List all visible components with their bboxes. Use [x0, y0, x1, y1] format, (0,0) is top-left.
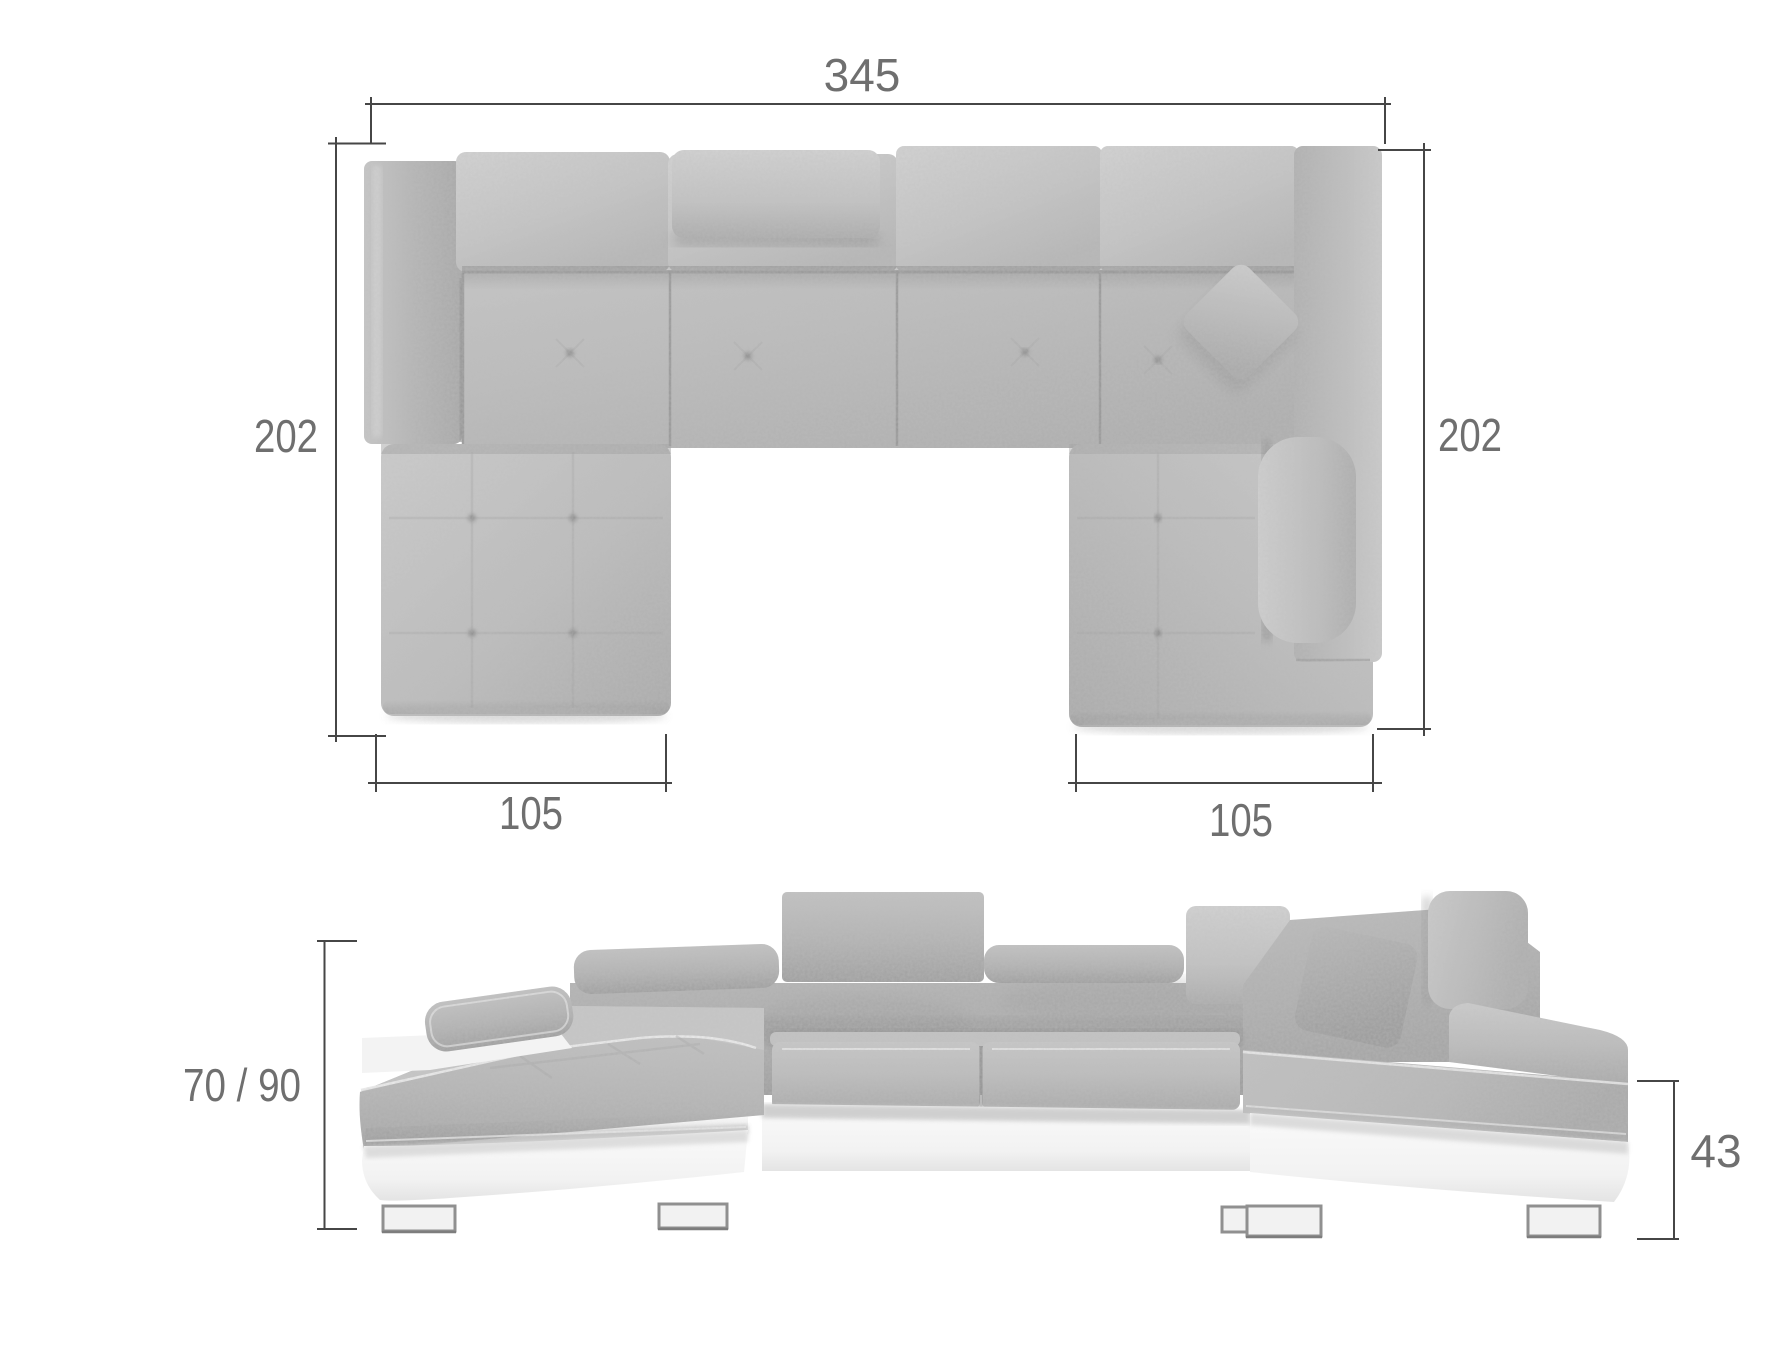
- svg-text:105: 105: [1209, 794, 1273, 846]
- svg-text:43: 43: [1690, 1125, 1741, 1177]
- svg-text:345: 345: [824, 49, 901, 101]
- svg-text:70 / 90: 70 / 90: [183, 1059, 301, 1111]
- svg-text:202: 202: [254, 410, 318, 462]
- svg-text:202: 202: [1438, 409, 1502, 461]
- svg-text:105: 105: [499, 787, 563, 839]
